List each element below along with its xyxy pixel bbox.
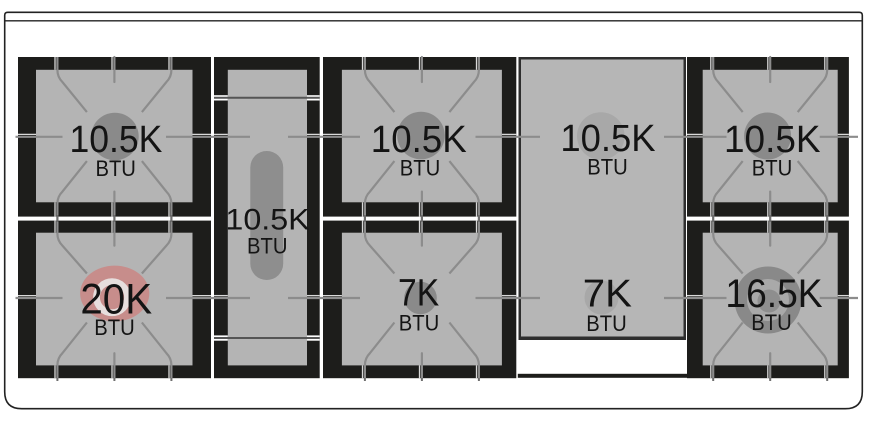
- svg-text:10.5K: 10.5K: [70, 118, 163, 161]
- svg-text:BTU: BTU: [587, 155, 628, 180]
- svg-text:10.5K: 10.5K: [225, 204, 310, 237]
- svg-text:BTU: BTU: [400, 156, 441, 181]
- svg-text:BTU: BTU: [399, 311, 440, 336]
- svg-text:BTU: BTU: [586, 311, 627, 336]
- svg-text:7K: 7K: [398, 273, 439, 315]
- svg-text:10.5K: 10.5K: [371, 118, 467, 161]
- svg-text:BTU: BTU: [752, 156, 793, 181]
- svg-text:BTU: BTU: [751, 310, 792, 335]
- svg-text:7K: 7K: [583, 273, 632, 316]
- svg-text:BTU: BTU: [94, 315, 135, 340]
- svg-text:BTU: BTU: [95, 156, 136, 181]
- svg-text:BTU: BTU: [247, 233, 288, 258]
